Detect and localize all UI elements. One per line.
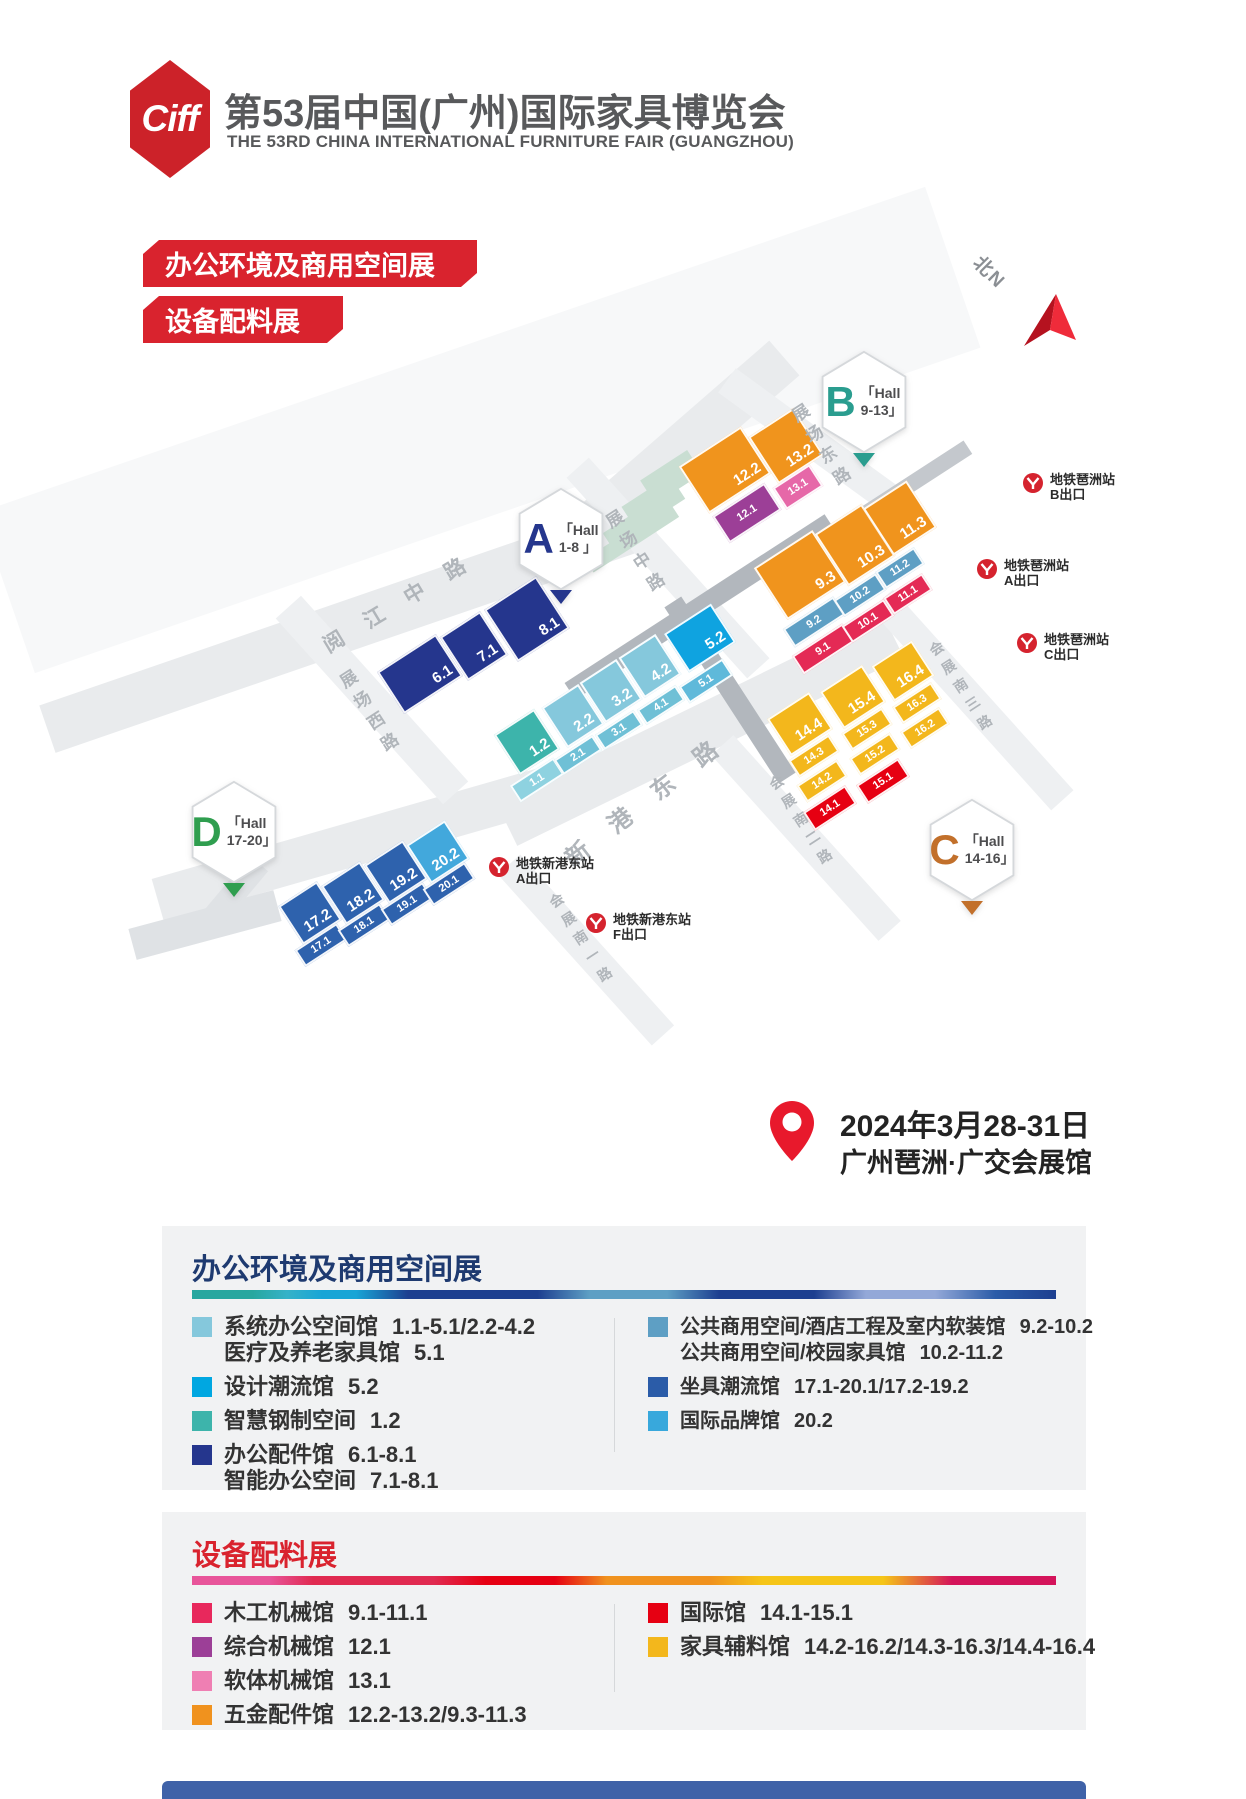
legend-swatch: [192, 1637, 212, 1657]
legend-item: 系统办公空间馆1.1-5.1/2.2-4.2医疗及养老家具馆5.1: [192, 1314, 535, 1366]
metro-entrance-B出口: 地铁琶洲站B出口: [1022, 472, 1115, 502]
legend-item-lines: 公共商用空间/酒店工程及室内软装馆9.2-10.2公共商用空间/校园家具馆10.…: [680, 1314, 1093, 1366]
ciff-logo: Ciff: [130, 60, 210, 178]
legend-gradient-bar: [192, 1576, 1056, 1585]
legend-item: 综合机械馆12.1: [192, 1634, 527, 1660]
legend-column-2: 公共商用空间/酒店工程及室内软装馆9.2-10.2公共商用空间/校园家具馆10.…: [648, 1314, 1093, 1442]
legend-item: 软体机械馆13.1: [192, 1668, 527, 1694]
legend-item-range: 9.2-10.2: [1020, 1316, 1093, 1338]
metro-icon: [976, 558, 998, 580]
legend-swatch: [192, 1317, 212, 1337]
legend-item-lines: 设计潮流馆5.2: [224, 1374, 379, 1400]
legend-item-range: 7.1-8.1: [370, 1468, 439, 1493]
legend-item: 家具辅料馆14.2-16.2/14.3-16.3/14.4-16.4: [648, 1634, 1095, 1660]
legend-item-line: 国际品牌馆20.2: [680, 1408, 833, 1434]
legend-item-range: 12.1: [348, 1634, 391, 1659]
legend-item-line: 设计潮流馆5.2: [224, 1374, 379, 1400]
hall-badge-B: B 「Hall9-13」: [818, 350, 910, 454]
hall-pointer-icon: [961, 901, 983, 915]
hall-letter: A: [523, 518, 553, 560]
legend-item-line: 木工机械馆9.1-11.1: [224, 1600, 428, 1626]
metro-icon: [1016, 632, 1038, 654]
next-section-bar: [162, 1781, 1086, 1799]
hall-badge-C: C 「Hall14-16」: [926, 798, 1018, 902]
legend-item: 五金配件馆12.2-13.2/9.3-11.3: [192, 1702, 527, 1728]
legend-item-line: 办公配件馆6.1-8.1: [224, 1442, 439, 1468]
legend-item-line: 医疗及养老家具馆5.1: [224, 1340, 535, 1366]
legend-item-name: 国际馆: [680, 1600, 746, 1625]
legend-item-range: 6.1-8.1: [348, 1442, 417, 1467]
legend-item-range: 9.1-11.1: [348, 1600, 428, 1625]
legend-swatch: [192, 1603, 212, 1623]
legend-item-lines: 系统办公空间馆1.1-5.1/2.2-4.2医疗及养老家具馆5.1: [224, 1314, 535, 1366]
legend-item-line: 国际馆14.1-15.1: [680, 1600, 853, 1626]
legend-item-range: 20.2: [794, 1410, 833, 1432]
legend-item-line: 家具辅料馆14.2-16.2/14.3-16.3/14.4-16.4: [680, 1634, 1095, 1660]
hall-range: 「Hall1-8 」: [559, 522, 599, 556]
legend-item-range: 14.1-15.1: [760, 1600, 853, 1625]
legend-item: 国际品牌馆20.2: [648, 1408, 1093, 1434]
legend-item-name: 系统办公空间馆: [224, 1314, 378, 1339]
hall-range: 「Hall14-16」: [965, 833, 1015, 867]
legend-item-name: 坐具潮流馆: [680, 1376, 780, 1398]
location-pin-icon: [766, 1098, 818, 1169]
legend-item-range: 14.2-16.2/14.3-16.3/14.4-16.4: [804, 1634, 1095, 1659]
legend-box-1: 办公环境及商用空间展系统办公空间馆1.1-5.1/2.2-4.2医疗及养老家具馆…: [162, 1226, 1086, 1490]
event-venue: 广州琶洲·广交会展馆: [840, 1141, 1092, 1180]
hall-badge-content: B 「Hall9-13」: [818, 350, 910, 454]
legend-item-name: 软体机械馆: [224, 1668, 334, 1693]
legend-item-name: 木工机械馆: [224, 1600, 334, 1625]
banner-equipment-show: 设备配料展: [143, 296, 343, 343]
metro-entrance-A出口: 地铁新港东站A出口: [488, 856, 594, 886]
legend-item-range: 1.1-5.1/2.2-4.2: [392, 1314, 535, 1339]
hall-letter: C: [929, 829, 959, 871]
metro-icon: [1022, 472, 1044, 494]
metro-icon: [585, 912, 607, 934]
hall-badge-content: D 「Hall17-20」: [188, 780, 280, 884]
hall-letter: D: [191, 811, 221, 853]
legend-item: 国际馆14.1-15.1: [648, 1600, 1095, 1626]
legend-title: 设备配料展: [192, 1532, 337, 1574]
legend-item-lines: 坐具潮流馆17.1-20.1/17.2-19.2: [680, 1374, 969, 1400]
legend-swatch: [648, 1603, 668, 1623]
legend-item-name: 家具辅料馆: [680, 1634, 790, 1659]
legend-item-range: 13.1: [348, 1668, 391, 1693]
metro-entrance-F出口: 地铁新港东站F出口: [585, 912, 691, 942]
legend-item-lines: 五金配件馆12.2-13.2/9.3-11.3: [224, 1702, 527, 1728]
legend-item-lines: 家具辅料馆14.2-16.2/14.3-16.3/14.4-16.4: [680, 1634, 1095, 1660]
legend-swatch: [648, 1637, 668, 1657]
legend-item: 智慧钢制空间1.2: [192, 1408, 535, 1434]
legend-item-line: 智能办公空间7.1-8.1: [224, 1468, 439, 1494]
legend-item-range: 5.2: [348, 1374, 379, 1399]
page-subtitle: THE 53RD CHINA INTERNATIONAL FURNITURE F…: [227, 132, 794, 152]
legend-item-range: 5.1: [414, 1340, 445, 1365]
legend-item-line: 系统办公空间馆1.1-5.1/2.2-4.2: [224, 1314, 535, 1340]
metro-entrance-A出口: 地铁琶洲站A出口: [976, 558, 1069, 588]
legend-item-range: 1.2: [370, 1408, 401, 1433]
legend-item-lines: 综合机械馆12.1: [224, 1634, 391, 1660]
legend-swatch: [192, 1377, 212, 1397]
banner-office-show: 办公环境及商用空间展: [143, 240, 477, 287]
legend-item-lines: 办公配件馆6.1-8.1智能办公空间7.1-8.1: [224, 1442, 439, 1494]
legend-swatch: [192, 1411, 212, 1431]
legend-column-2: 国际馆14.1-15.1家具辅料馆14.2-16.2/14.3-16.3/14.…: [648, 1600, 1095, 1668]
legend-item-line: 公共商用空间/酒店工程及室内软装馆9.2-10.2: [680, 1314, 1093, 1340]
ciff-logo-text: Ciff: [142, 98, 199, 140]
legend-item-line: 综合机械馆12.1: [224, 1634, 391, 1660]
legend-item-line: 软体机械馆13.1: [224, 1668, 391, 1694]
legend-item-name: 医疗及养老家具馆: [224, 1340, 400, 1365]
legend-swatch: [648, 1377, 668, 1397]
hall-letter: B: [825, 381, 855, 423]
page-title: 第53届中国(广州)国际家具博览会: [224, 82, 786, 137]
hall-badge-content: A 「Hall1-8 」: [515, 487, 607, 591]
legend-item-name: 智能办公空间: [224, 1468, 356, 1493]
legend-item: 公共商用空间/酒店工程及室内软装馆9.2-10.2公共商用空间/校园家具馆10.…: [648, 1314, 1093, 1366]
legend-column-1: 系统办公空间馆1.1-5.1/2.2-4.2医疗及养老家具馆5.1设计潮流馆5.…: [192, 1314, 535, 1502]
legend-item-name: 办公配件馆: [224, 1442, 334, 1467]
hall-pointer-icon: [223, 883, 245, 897]
legend-item-lines: 木工机械馆9.1-11.1: [224, 1600, 428, 1626]
legend-swatch: [192, 1445, 212, 1465]
legend-item-name: 五金配件馆: [224, 1702, 334, 1727]
north-arrow-icon: [1022, 292, 1078, 355]
metro-label: 地铁新港东站A出口: [516, 856, 594, 886]
legend-column-divider: [614, 1318, 615, 1452]
legend-column-1: 木工机械馆9.1-11.1综合机械馆12.1软体机械馆13.1五金配件馆12.2…: [192, 1600, 527, 1736]
legend-item: 办公配件馆6.1-8.1智能办公空间7.1-8.1: [192, 1442, 535, 1494]
legend-title: 办公环境及商用空间展: [192, 1246, 482, 1288]
legend-item: 坐具潮流馆17.1-20.1/17.2-19.2: [648, 1374, 1093, 1400]
legend-swatch: [648, 1411, 668, 1431]
legend-item-name: 智慧钢制空间: [224, 1408, 356, 1433]
hall-badge-D: D 「Hall17-20」: [188, 780, 280, 884]
metro-label: 地铁琶洲站B出口: [1050, 472, 1115, 502]
legend-item-range: 17.1-20.1/17.2-19.2: [794, 1376, 969, 1398]
legend-swatch: [192, 1671, 212, 1691]
legend-item-range: 10.2-11.2: [920, 1342, 1003, 1364]
legend-item-name: 综合机械馆: [224, 1634, 334, 1659]
hall-pointer-icon: [550, 590, 572, 604]
legend-item-lines: 智慧钢制空间1.2: [224, 1408, 401, 1434]
legend-item: 设计潮流馆5.2: [192, 1374, 535, 1400]
legend-item-line: 智慧钢制空间1.2: [224, 1408, 401, 1434]
legend-item-name: 设计潮流馆: [224, 1374, 334, 1399]
hall-badge-A: A 「Hall1-8 」: [515, 487, 607, 591]
metro-label: 地铁琶洲站C出口: [1044, 632, 1109, 662]
legend-item-lines: 软体机械馆13.1: [224, 1668, 391, 1694]
legend-item-name: 国际品牌馆: [680, 1410, 780, 1432]
legend-swatch: [648, 1317, 668, 1337]
event-date: 2024年3月28-31日: [840, 1101, 1090, 1145]
legend-gradient-bar: [192, 1290, 1056, 1299]
north-label: 北N: [968, 249, 1013, 294]
metro-label: 地铁新港东站F出口: [613, 912, 691, 942]
legend-item-name: 公共商用空间/酒店工程及室内软装馆: [680, 1316, 1006, 1338]
legend-item-name: 公共商用空间/校园家具馆: [680, 1342, 906, 1364]
metro-entrance-C出口: 地铁琶洲站C出口: [1016, 632, 1109, 662]
hall-range: 「Hall9-13」: [861, 385, 903, 419]
legend-item-range: 12.2-13.2/9.3-11.3: [348, 1702, 527, 1727]
hall-badge-content: C 「Hall14-16」: [926, 798, 1018, 902]
legend-item-lines: 国际品牌馆20.2: [680, 1408, 833, 1434]
legend-column-divider: [614, 1604, 615, 1692]
legend-box-2: 设备配料展木工机械馆9.1-11.1综合机械馆12.1软体机械馆13.1五金配件…: [162, 1512, 1086, 1730]
hall-pointer-icon: [853, 453, 875, 467]
hall-range: 「Hall17-20」: [227, 815, 277, 849]
legend-swatch: [192, 1705, 212, 1725]
legend-item-line: 公共商用空间/校园家具馆10.2-11.2: [680, 1340, 1093, 1366]
ciff-fair-map-poster: Ciff 第53届中国(广州)国际家具博览会 THE 53RD CHINA IN…: [0, 0, 1246, 1799]
road-label-会展南一路: 会展南一路: [544, 888, 623, 995]
metro-label: 地铁琶洲站A出口: [1004, 558, 1069, 588]
legend-item: 木工机械馆9.1-11.1: [192, 1600, 527, 1626]
legend-item-lines: 国际馆14.1-15.1: [680, 1600, 853, 1626]
legend-item-line: 坐具潮流馆17.1-20.1/17.2-19.2: [680, 1374, 969, 1400]
metro-icon: [488, 856, 510, 878]
legend-item-line: 五金配件馆12.2-13.2/9.3-11.3: [224, 1702, 527, 1728]
